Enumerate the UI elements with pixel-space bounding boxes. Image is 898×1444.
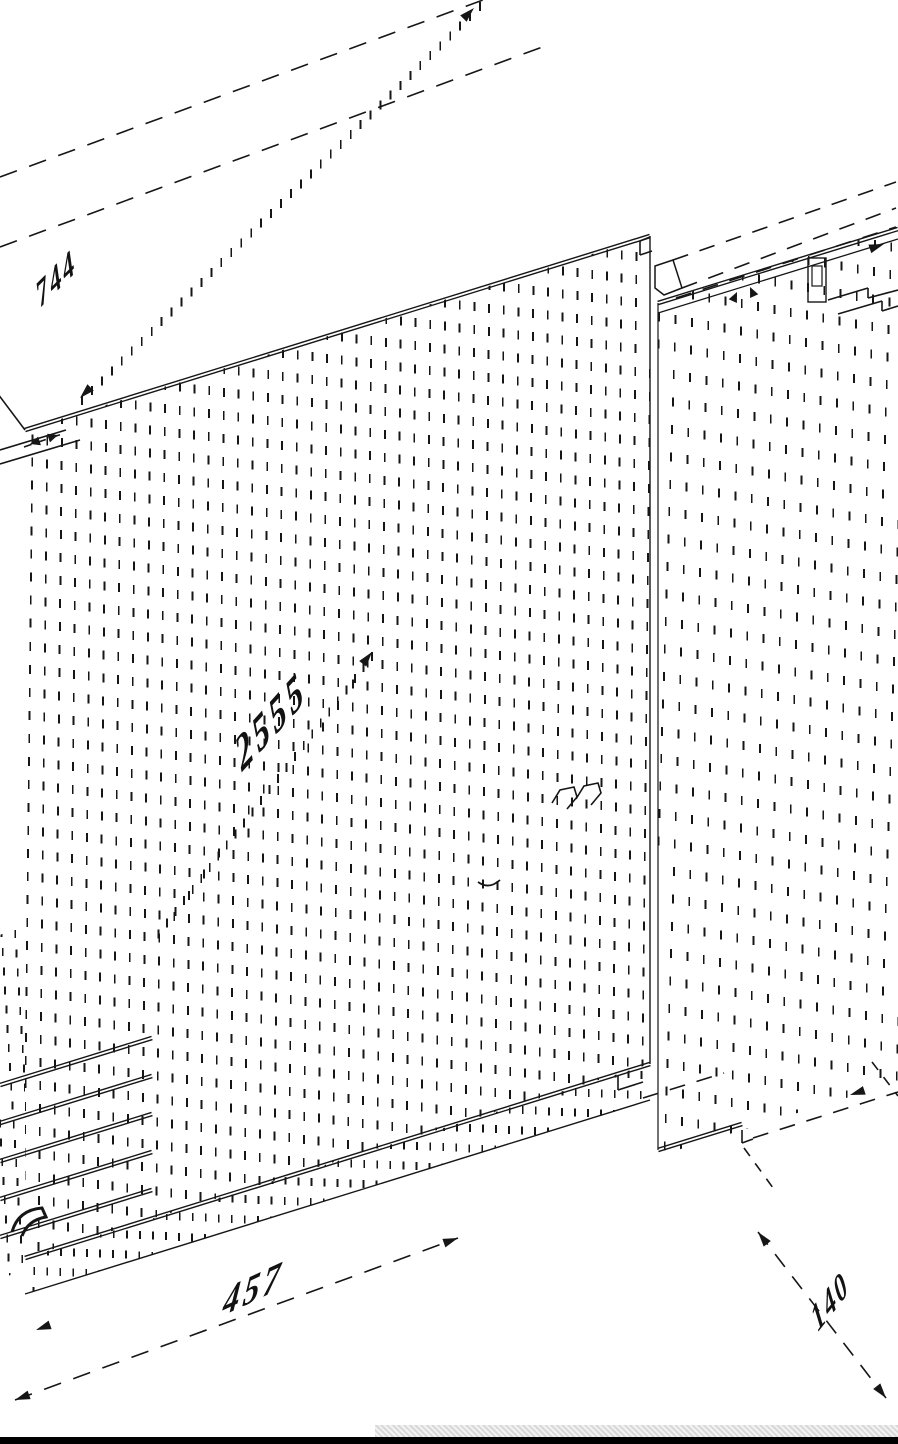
dimension-labels: 744 2555 457 140 [32,241,854,1339]
hatched-faces [0,220,898,1312]
dimension-label-depth: 744 [32,241,80,316]
app-canvas: 744 2555 457 140 [0,0,898,1444]
dimension-label-plinth: 140 [805,1261,854,1338]
dimension-label-width: 2555 [229,660,312,783]
bottom-black-bar [0,1437,898,1444]
technical-drawing: 744 2555 457 140 [0,0,898,1444]
drawing-linework [0,0,898,1400]
dimension-label-bottom: 457 [220,1251,286,1326]
canvas-edge-texture-strip [375,1425,898,1437]
